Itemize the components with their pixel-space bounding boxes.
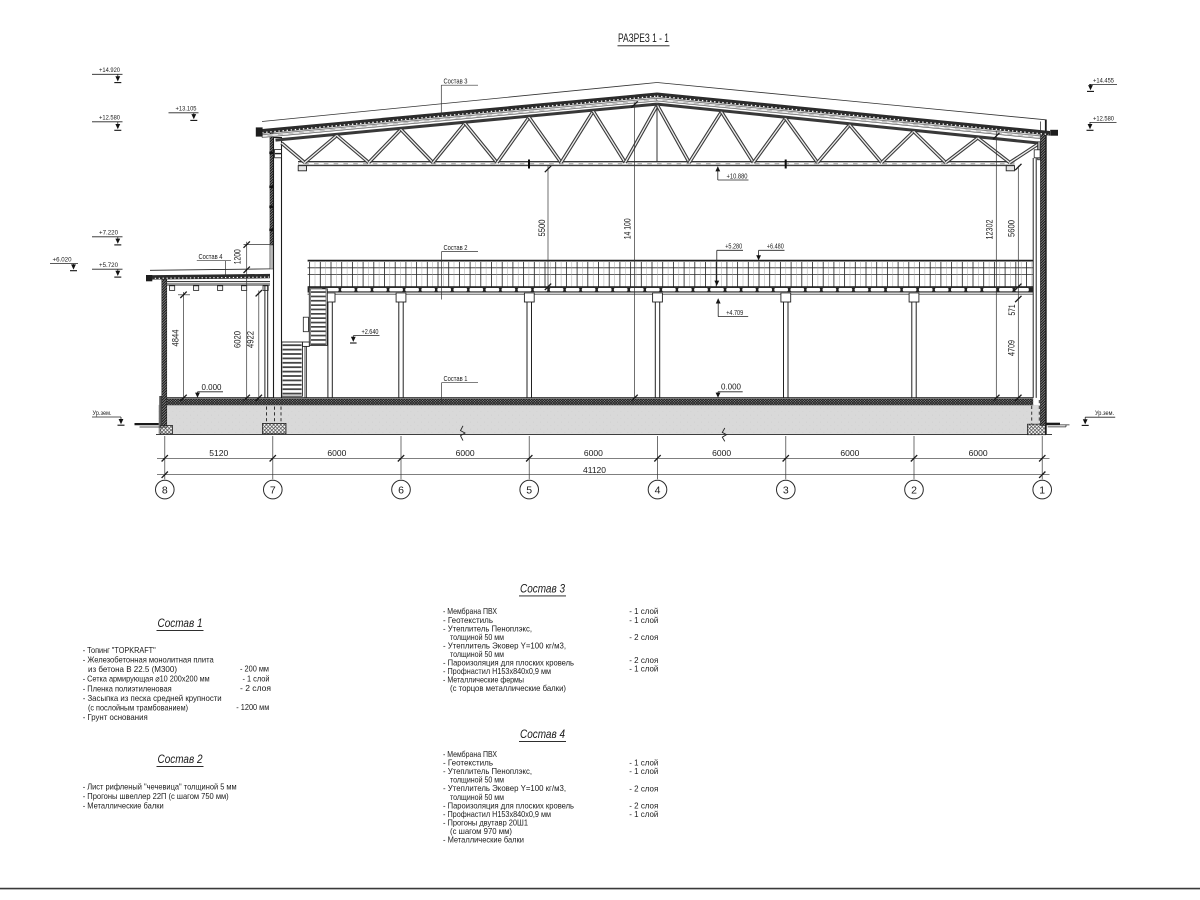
- svg-text:5: 5: [526, 484, 532, 496]
- svg-text:0.000: 0.000: [721, 383, 742, 392]
- svg-text:- 1 слой: - 1 слой: [629, 809, 658, 819]
- svg-text:+13.105: +13.105: [176, 106, 197, 113]
- svg-text:Состав 3: Состав 3: [444, 76, 468, 85]
- svg-text:- 1 слой: - 1 слой: [629, 766, 658, 776]
- svg-text:+7.220: +7.220: [99, 230, 118, 237]
- svg-text:Состав 4: Состав 4: [199, 252, 223, 261]
- svg-text:- 200 мм: - 200 мм: [240, 664, 269, 674]
- svg-text:+10.880: +10.880: [727, 173, 748, 180]
- svg-text:7: 7: [270, 484, 276, 496]
- svg-text:0.000: 0.000: [202, 383, 223, 392]
- svg-text:1: 1: [1039, 484, 1045, 496]
- svg-text:+2.640: +2.640: [362, 329, 379, 336]
- svg-text:4: 4: [655, 484, 661, 496]
- svg-text:- Прогоны швеллер 22П (с шагом: - Прогоны швеллер 22П (с шагом 750 мм): [83, 791, 229, 801]
- svg-text:- 1 слой: - 1 слой: [243, 673, 270, 683]
- svg-text:+5.280: +5.280: [725, 244, 742, 251]
- svg-text:2: 2: [911, 484, 917, 496]
- svg-text:4844: 4844: [170, 330, 181, 347]
- svg-text:6000: 6000: [456, 448, 475, 458]
- svg-text:- 1 слой: - 1 слой: [629, 663, 658, 673]
- svg-text:из бетона В 22.5 (М300): из бетона В 22.5 (М300): [88, 664, 177, 674]
- svg-text:- 2 слоя: - 2 слоя: [629, 632, 658, 642]
- svg-text:41120: 41120: [583, 465, 606, 475]
- svg-text:- Пленка полиэтиленовая: - Пленка полиэтиленовая: [83, 683, 172, 693]
- svg-text:Состав 3: Состав 3: [520, 581, 565, 595]
- svg-text:5120: 5120: [209, 448, 228, 458]
- svg-text:+14.455: +14.455: [1093, 77, 1114, 84]
- svg-text:Состав 1: Состав 1: [158, 616, 203, 630]
- svg-text:Ур.зем.: Ур.зем.: [93, 410, 112, 417]
- svg-text:- Сетка армирующая ⌀10 200х200: - Сетка армирующая ⌀10 200х200 мм: [83, 674, 210, 684]
- svg-text:5600: 5600: [1007, 220, 1018, 237]
- svg-text:Ур.зем.: Ур.зем.: [1095, 410, 1114, 417]
- svg-text:Состав 2: Состав 2: [444, 243, 468, 252]
- svg-text:14 100: 14 100: [623, 218, 634, 239]
- svg-text:8: 8: [162, 484, 168, 496]
- svg-text:- Топинг "TOPKRAFT": - Топинг "TOPKRAFT": [83, 645, 156, 655]
- svg-text:6000: 6000: [712, 448, 731, 458]
- svg-text:+12.580: +12.580: [99, 115, 120, 122]
- svg-text:6000: 6000: [327, 448, 346, 458]
- svg-text:- Засыпка из песка средней кру: - Засыпка из песка средней крупности: [83, 693, 222, 703]
- svg-text:(с торцов металлические балки): (с торцов металлические балки): [450, 683, 566, 693]
- svg-text:4922: 4922: [246, 331, 257, 348]
- svg-text:- 2 слоя: - 2 слоя: [629, 783, 658, 793]
- svg-text:6000: 6000: [584, 448, 603, 458]
- svg-text:+6.480: +6.480: [767, 244, 784, 251]
- svg-text:- Железобетонная монолитная п: - Железобетонная монолитная плита: [83, 655, 214, 665]
- svg-text:6: 6: [398, 484, 404, 496]
- svg-text:- 2 слоя: - 2 слоя: [240, 683, 271, 693]
- svg-text:3: 3: [783, 484, 789, 496]
- svg-text:1200: 1200: [232, 249, 242, 264]
- svg-text:+12.580: +12.580: [1093, 115, 1114, 122]
- svg-text:(с послойным трамбованием): (с послойным трамбованием): [88, 702, 188, 712]
- svg-text:6000: 6000: [840, 448, 859, 458]
- svg-text:5500: 5500: [537, 220, 548, 237]
- svg-text:+5.720: +5.720: [99, 262, 118, 269]
- svg-text:РАЗРЕЗ 1 - 1: РАЗРЕЗ 1 - 1: [618, 33, 669, 45]
- svg-text:6020: 6020: [232, 331, 243, 348]
- svg-text:- Грунт основания: - Грунт основания: [83, 712, 148, 722]
- svg-text:- Металлические балки: - Металлические балки: [443, 835, 524, 845]
- svg-text:+4.709: +4.709: [726, 310, 743, 317]
- svg-text:12302: 12302: [984, 220, 995, 240]
- svg-text:- 1200 мм: - 1200 мм: [236, 702, 269, 712]
- svg-text:- Лист рифленый "чечевица" тол: - Лист рифленый "чечевица" толщиной 5 мм: [83, 781, 237, 791]
- svg-text:4709: 4709: [1007, 340, 1017, 356]
- svg-text:+6.020: +6.020: [53, 257, 72, 264]
- svg-text:Состав 1: Состав 1: [444, 374, 468, 383]
- svg-text:- Металлические балки: - Металлические балки: [83, 801, 164, 811]
- svg-text:571: 571: [1007, 305, 1017, 316]
- svg-text:+14.920: +14.920: [99, 67, 120, 74]
- svg-text:- 1 слой: - 1 слой: [629, 615, 658, 625]
- svg-text:Состав 2: Состав 2: [158, 752, 203, 766]
- svg-text:6000: 6000: [969, 448, 988, 458]
- svg-text:Состав 4: Состав 4: [520, 727, 565, 741]
